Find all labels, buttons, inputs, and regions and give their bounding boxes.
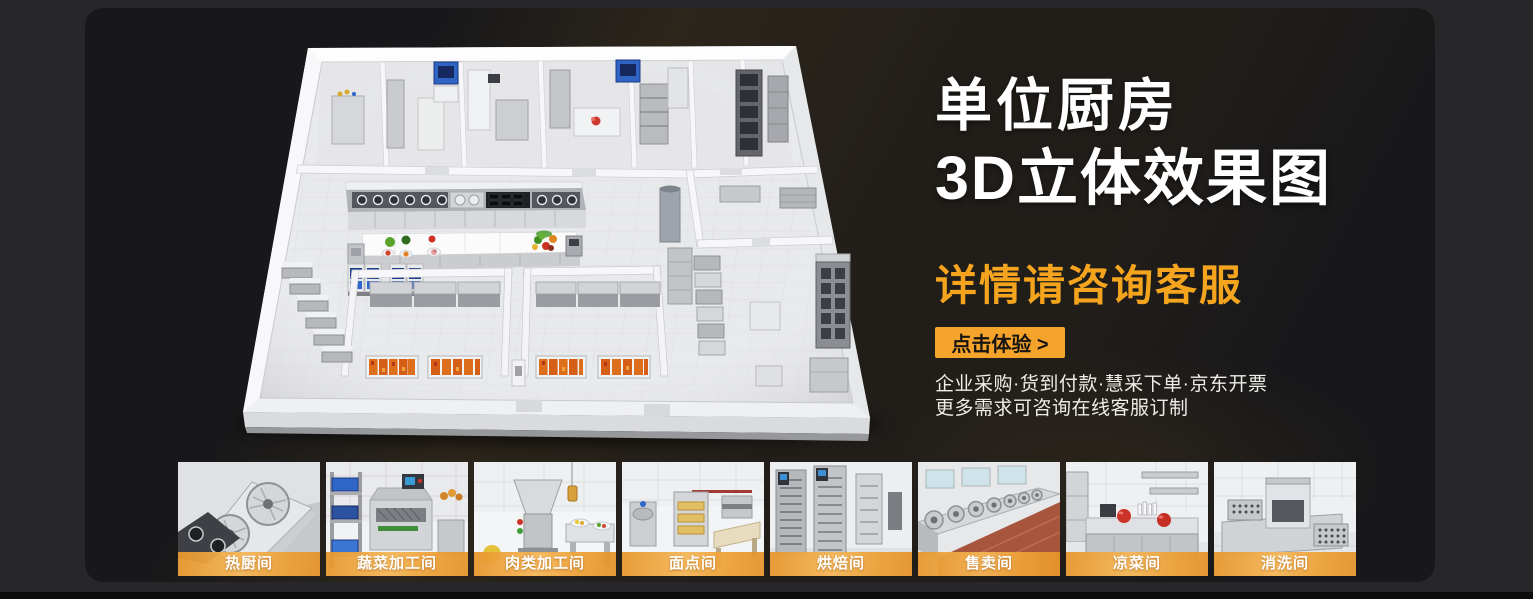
banner-panel: 单位厨房 3D立体效果图 详情请咨询客服 点击体验 > 企业采购·货到付款·慧采… [85,8,1435,582]
page: { "hero": { "title_line1": "单位厨房", "titl… [0,0,1533,599]
thumbnail-label: 凉菜间 [1066,552,1208,576]
hero-title-line2: 3D立体效果图 [935,144,1332,212]
thumbnail-label: 消洗间 [1214,552,1356,576]
hero-text-block: 单位厨房 3D立体效果图 详情请咨询客服 点击体验 > 企业采购·货到付款·慧采… [935,74,1332,421]
prep-counter [348,231,582,271]
cook-line [346,182,586,230]
thumbnail-label: 热厨间 [178,552,320,576]
kitchen-floorplan-3d [220,10,900,460]
gallery-item-hot-kitchen[interactable]: 热厨间 [178,462,320,576]
gallery-item-cold-dish[interactable]: 凉菜间 [1066,462,1208,576]
thumbnail-label: 面点间 [622,552,764,576]
thumbnail-label: 蔬菜加工间 [326,552,468,576]
hero-note-line2: 更多需求可咨询在线客服订制 [935,397,1332,421]
gallery-item-baking[interactable]: 烘焙间 [770,462,912,576]
thumbnail-label: 烘焙间 [770,552,912,576]
room-gallery: 热厨间 蔬菜加工间 [178,462,1356,576]
thumbnail-label: 售卖间 [918,552,1060,576]
hero-title-line1: 单位厨房 [935,74,1332,140]
cta-button[interactable]: 点击体验 > [935,327,1065,358]
gallery-item-meat-processing[interactable]: 肉类加工间 [474,462,616,576]
bottom-dark-strip [0,592,1533,599]
gallery-item-vegetable-processing[interactable]: 蔬菜加工间 [326,462,468,576]
hero-note-line1: 企业采购·货到付款·慧采下单·京东开票 [935,373,1332,397]
gallery-item-sales[interactable]: 售卖间 [918,462,1060,576]
gallery-item-washing[interactable]: 消洗间 [1214,462,1356,576]
hero-subtitle: 详情请咨询客服 [935,252,1332,313]
thumbnail-label: 肉类加工间 [474,552,616,576]
gallery-item-pastry[interactable]: 面点间 [622,462,764,576]
